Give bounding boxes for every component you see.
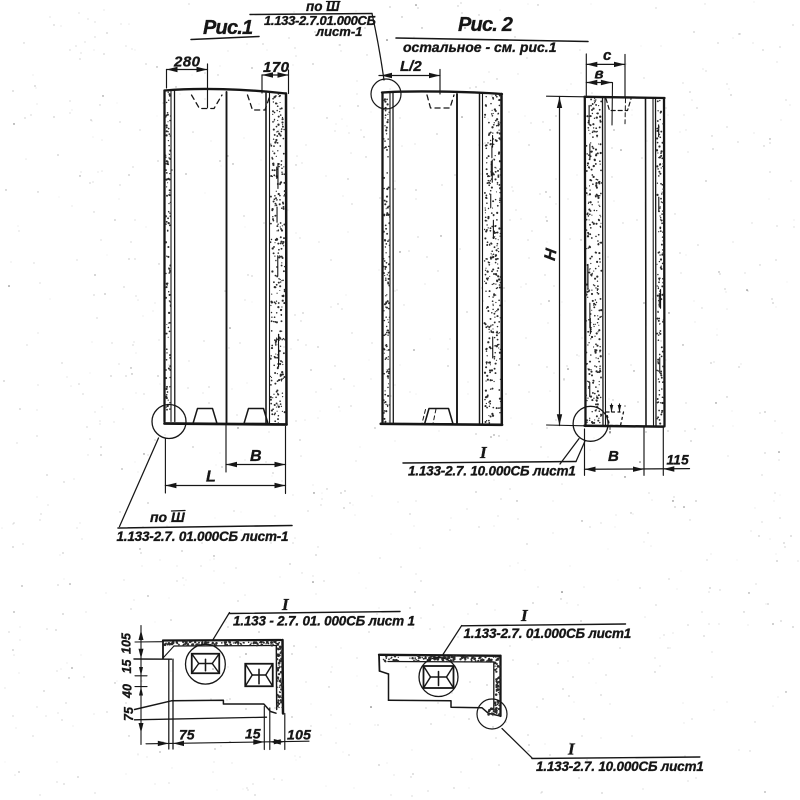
svg-text:170: 170 [263,59,290,76]
svg-text:1.133 - 2.7. 01. 000СБ лист 1: 1.133 - 2.7. 01. 000СБ лист 1 [233,614,415,629]
svg-text:115: 115 [667,453,690,468]
svg-text:75: 75 [122,706,136,721]
svg-text:в: в [595,66,604,83]
svg-text:с: с [603,47,612,64]
svg-text:75: 75 [179,727,195,743]
svg-text:40: 40 [121,684,135,699]
svg-text:лист-1: лист-1 [315,24,362,39]
svg-text:15: 15 [120,659,134,674]
svg-text:L: L [206,469,216,486]
svg-text:15: 15 [245,726,261,742]
svg-text:1.133-2.7. 01.000СБ лист1: 1.133-2.7. 01.000СБ лист1 [464,626,632,641]
svg-text:105: 105 [120,632,134,654]
svg-text:105: 105 [287,727,311,743]
svg-text:Рис. 2: Рис. 2 [458,14,513,36]
svg-text:Рис.1: Рис.1 [203,17,253,39]
svg-text:1.133-2.7. 10.000СБ лист1: 1.133-2.7. 10.000СБ лист1 [536,759,704,774]
svg-text:по Ш: по Ш [150,509,185,525]
svg-text:1.133-2.7. 10.000СБ лист1: 1.133-2.7. 10.000СБ лист1 [408,464,576,479]
svg-text:1.133-2.7. 01.000СБ лист-1: 1.133-2.7. 01.000СБ лист-1 [117,529,289,544]
svg-text:280: 280 [173,54,201,71]
svg-text:L/2: L/2 [400,58,422,75]
svg-text:остальное - см. рис.1: остальное - см. рис.1 [403,39,557,55]
svg-text:В: В [608,448,619,465]
svg-text:В: В [250,448,262,465]
